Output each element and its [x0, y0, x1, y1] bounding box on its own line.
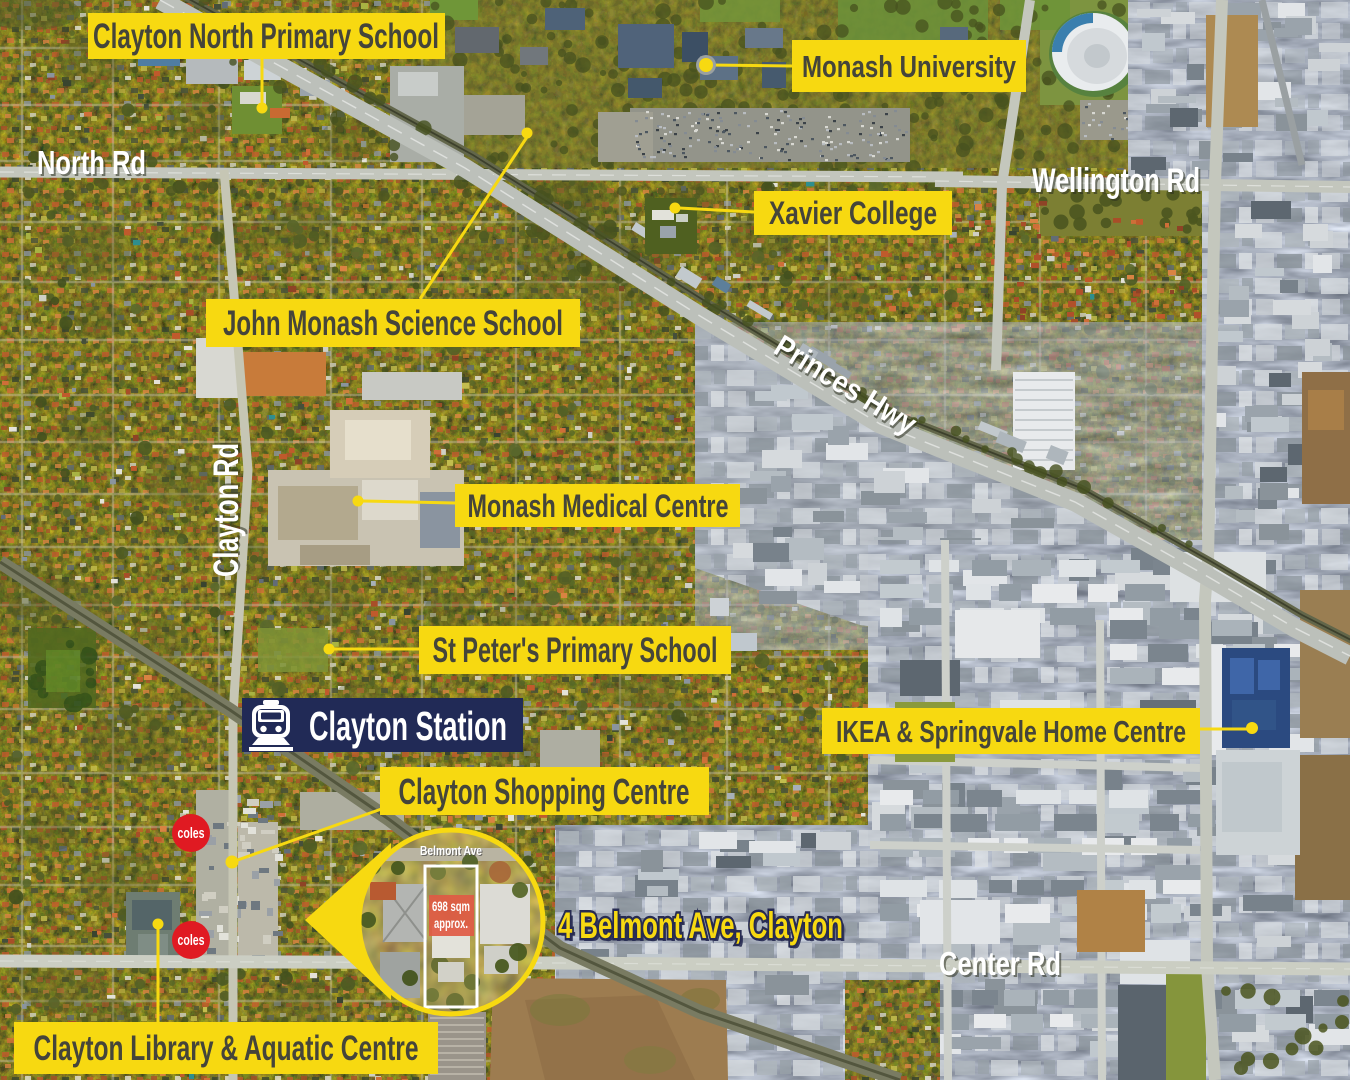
svg-text:Monash University: Monash University [802, 49, 1017, 84]
svg-text:North Rd: North Rd [37, 144, 146, 181]
svg-text:Xavier College: Xavier College [769, 195, 937, 231]
svg-text:Clayton Rd: Clayton Rd [207, 443, 246, 577]
svg-text:Belmont Ave: Belmont Ave [420, 843, 482, 858]
svg-text:St Peter's Primary School: St Peter's Primary School [433, 631, 718, 670]
svg-text:John Monash Science School: John Monash Science School [223, 304, 563, 343]
svg-text:Clayton Library & Aquatic Cent: Clayton Library & Aquatic Centre [34, 1029, 419, 1068]
svg-text:Clayton North Primary School: Clayton North Primary School [93, 17, 439, 56]
svg-text:coles: coles [178, 932, 205, 949]
svg-text:Wellington Rd: Wellington Rd [1032, 162, 1200, 200]
svg-text:Monash Medical Centre: Monash Medical Centre [468, 488, 729, 524]
svg-text:Clayton Station: Clayton Station [309, 703, 507, 749]
svg-text:IKEA & Springvale Home Centre: IKEA & Springvale Home Centre [836, 714, 1186, 749]
svg-text:approx.: approx. [434, 915, 468, 931]
svg-text:Clayton Shopping Centre: Clayton Shopping Centre [399, 771, 690, 812]
svg-text:698 sqm: 698 sqm [432, 898, 470, 914]
svg-text:coles: coles [178, 825, 205, 842]
svg-text:4 Belmont Ave, Clayton: 4 Belmont Ave, Clayton [558, 905, 843, 946]
svg-text:Center Rd: Center Rd [939, 945, 1061, 982]
